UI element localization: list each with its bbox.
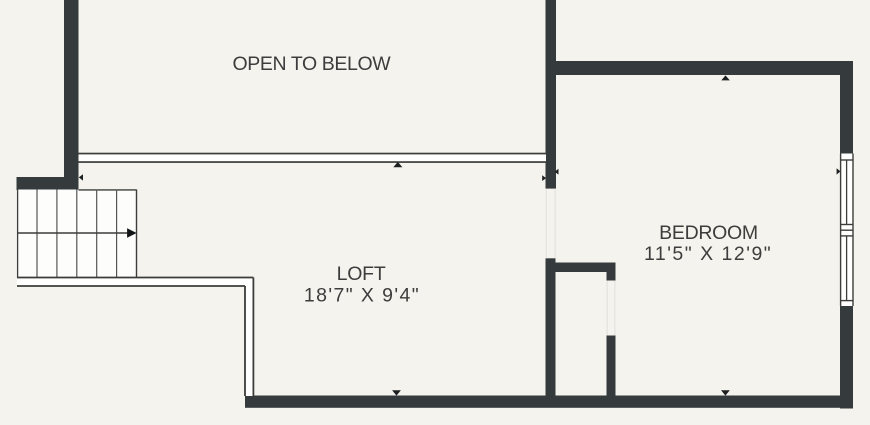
svg-text:18'7" X 9'4": 18'7" X 9'4" bbox=[304, 285, 420, 307]
svg-text:BEDROOM: BEDROOM bbox=[659, 222, 758, 244]
svg-text:OPEN TO BELOW: OPEN TO BELOW bbox=[233, 53, 392, 75]
svg-text:11'5" X 12'9": 11'5" X 12'9" bbox=[644, 243, 772, 265]
svg-text:LOFT: LOFT bbox=[337, 263, 386, 285]
